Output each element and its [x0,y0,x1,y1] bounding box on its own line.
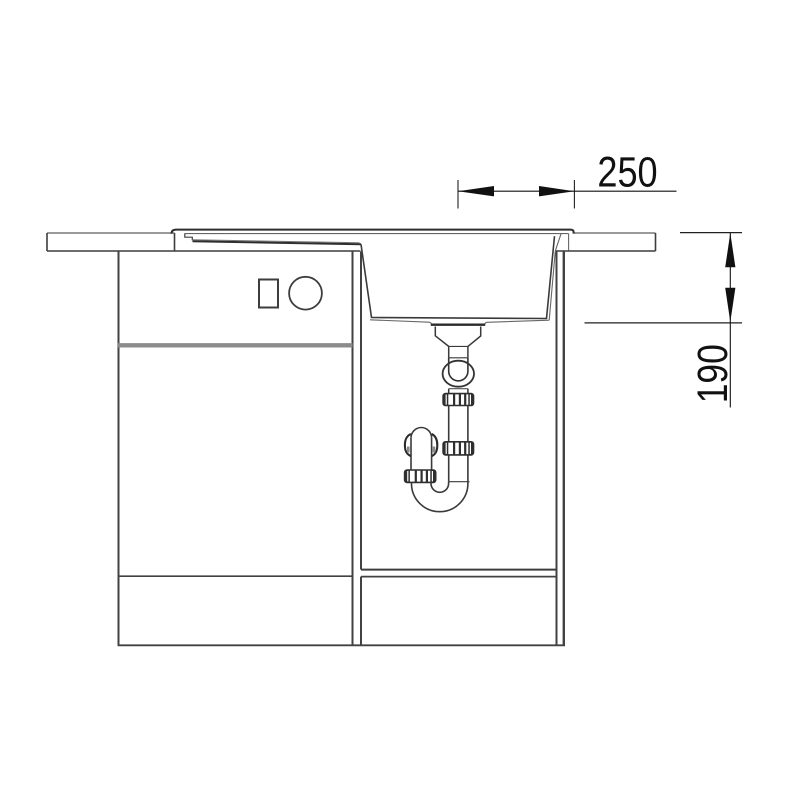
svg-text:190: 190 [689,344,737,403]
svg-text:250: 250 [597,149,657,197]
